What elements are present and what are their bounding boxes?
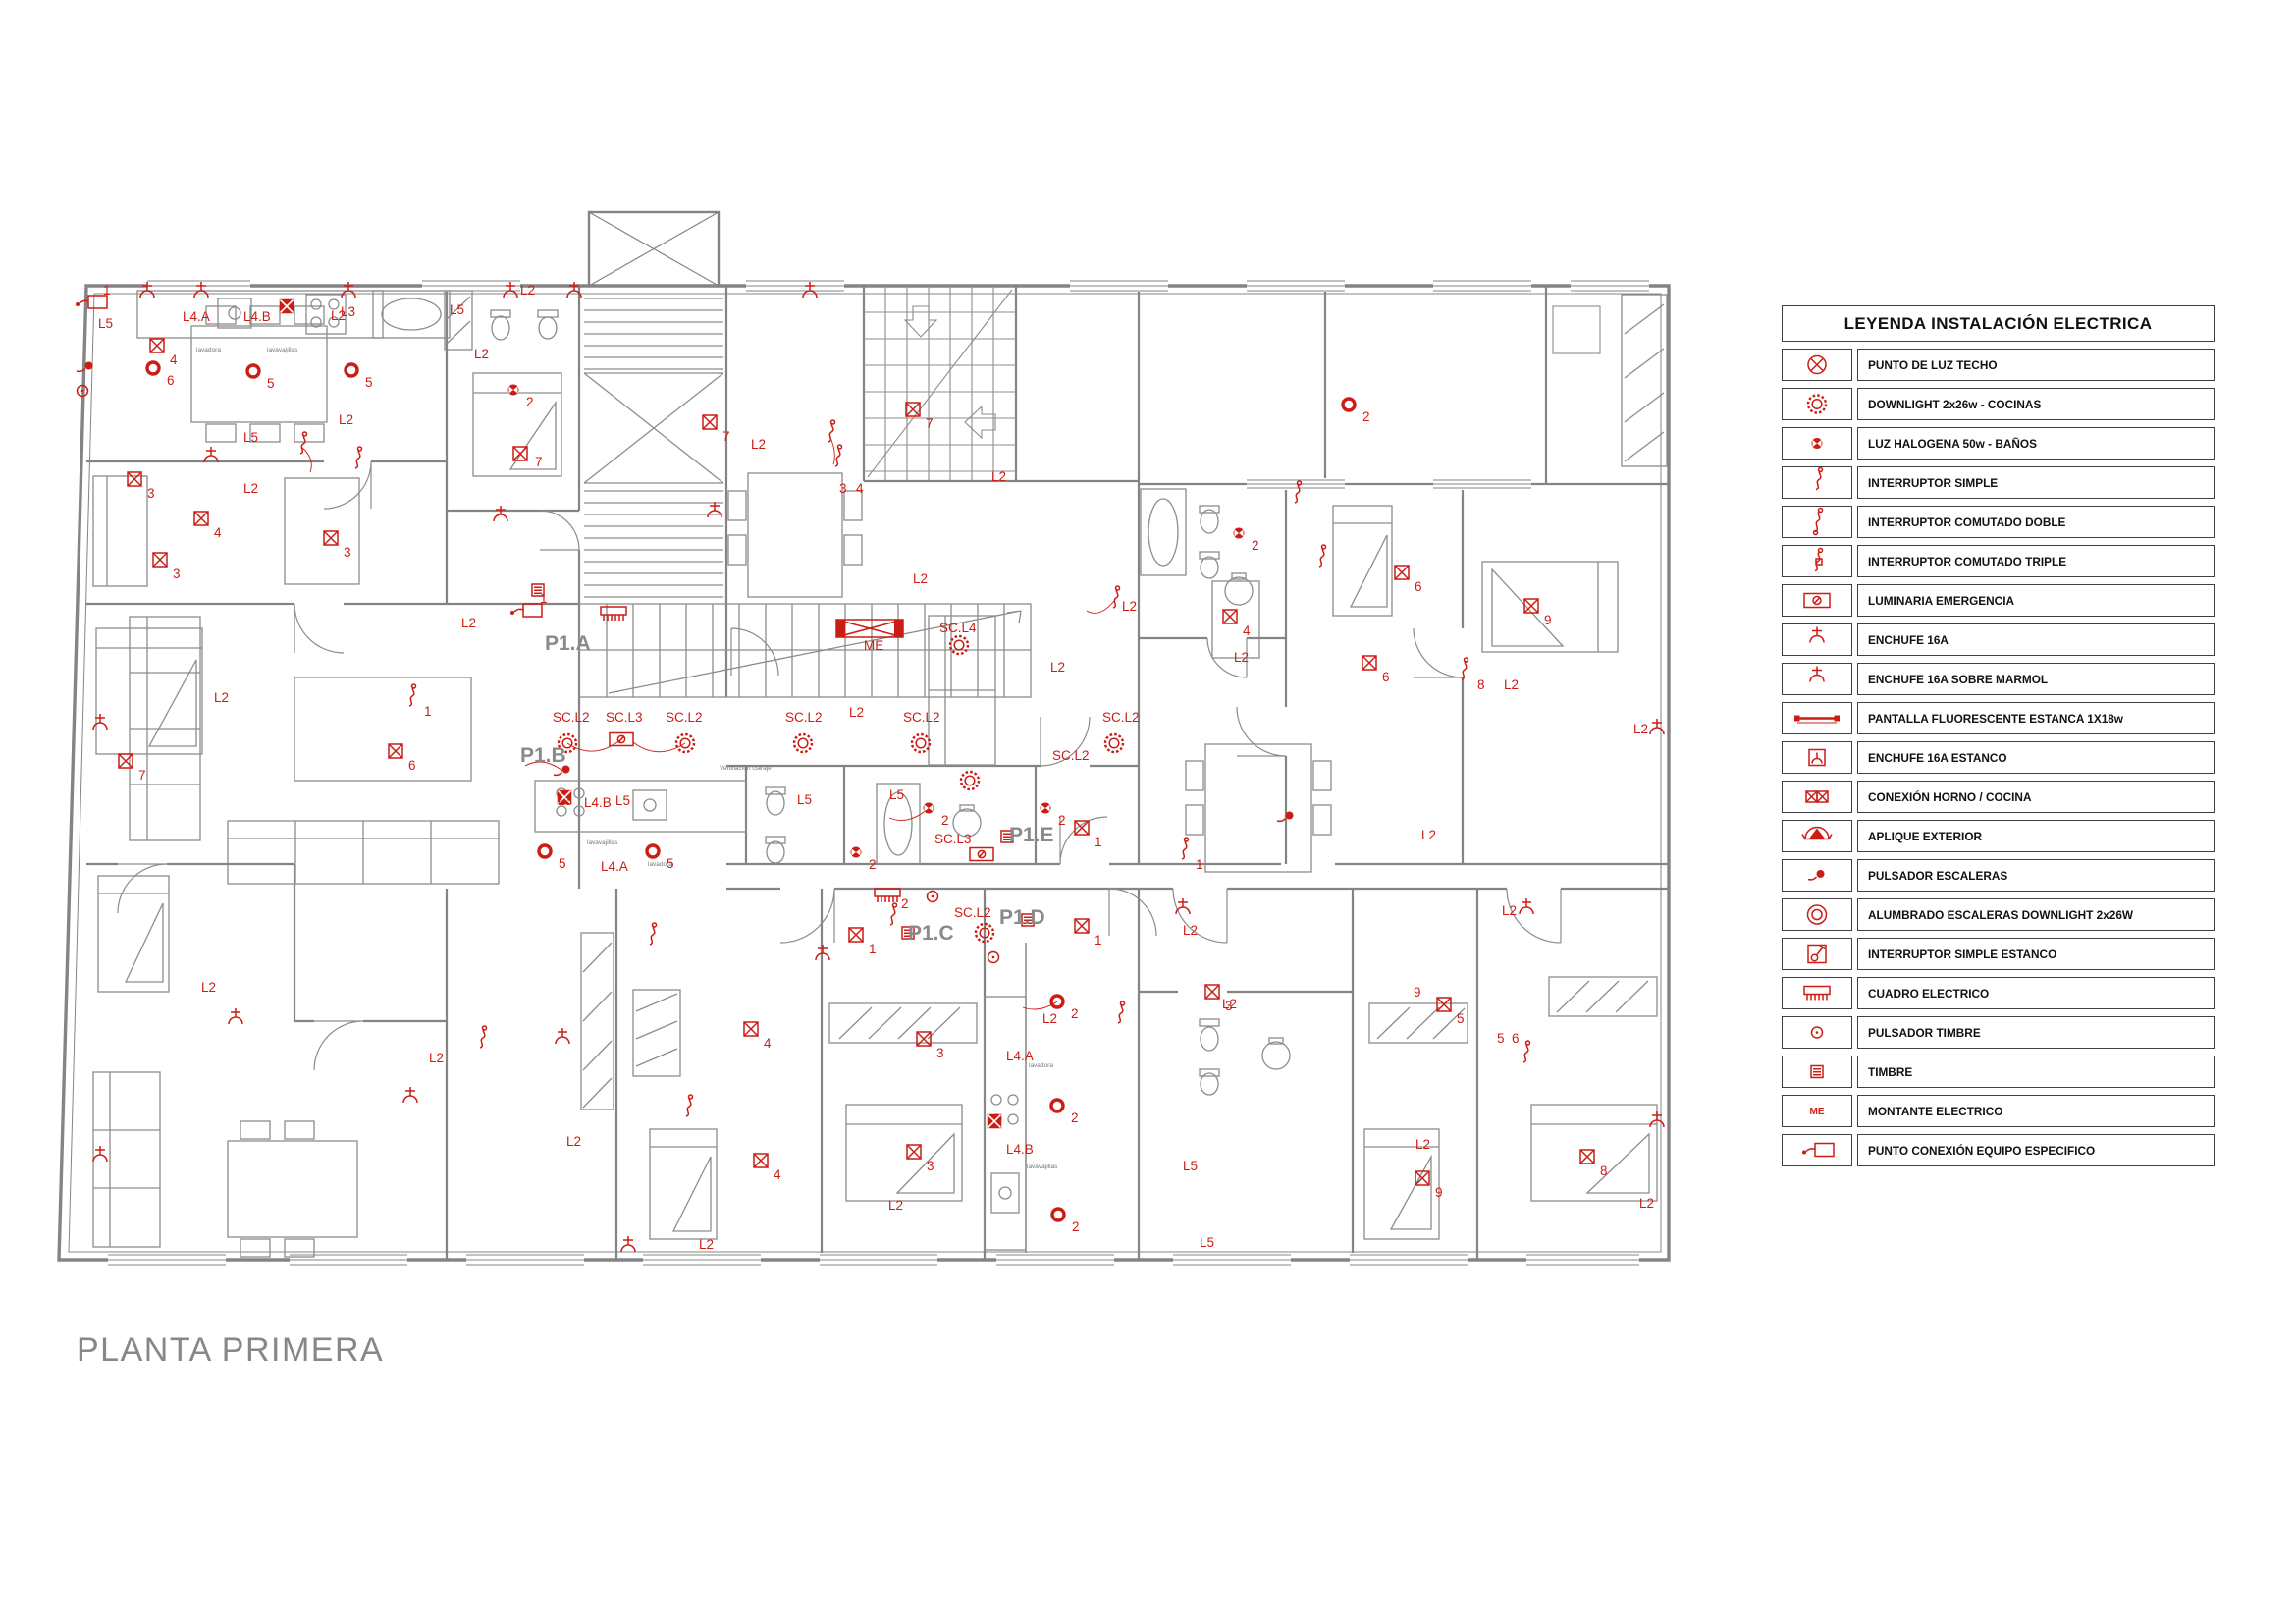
legend-row: PUNTO CONEXIÓN EQUIPO ESPECIFICO — [1782, 1134, 2215, 1166]
legend-row: INTERRUPTOR SIMPLE — [1782, 466, 2215, 499]
symbol-horno-icon — [281, 300, 294, 313]
circuit-label: 2 — [869, 857, 877, 872]
symbol-x-icon — [1223, 610, 1237, 623]
symbol-sw-icon — [1523, 1041, 1530, 1062]
symbol-br-icon — [1052, 1209, 1064, 1220]
symbol-x-icon — [389, 744, 402, 758]
coffee-table — [285, 478, 359, 584]
legend-label: APLIQUE EXTERIOR — [1857, 820, 2215, 852]
svg-text:ME: ME — [1810, 1107, 1825, 1117]
legend-row: CUADRO ELECTRICO — [1782, 977, 2215, 1009]
symbol-sw-icon — [828, 420, 835, 442]
legend-symbol-plt-icon — [1782, 349, 1852, 381]
sofa — [929, 616, 995, 765]
circuit-label: 3 — [344, 545, 351, 560]
symbol-x-icon — [153, 553, 167, 567]
legend-row: LUMINARIA EMERGENCIA — [1782, 584, 2215, 617]
wardrobe — [1549, 977, 1657, 1016]
legend-label: MONTANTE ELECTRICO — [1857, 1095, 2215, 1127]
plan-note: Ventilación Garaje — [720, 765, 772, 772]
symbol-x-icon — [907, 1145, 921, 1159]
apartment-label: P1.D — [999, 906, 1045, 929]
legend-label: ALUMBRADO ESCALERAS DOWNLIGHT 2x26W — [1857, 898, 2215, 931]
circuit-label: 3 — [927, 1159, 934, 1173]
symbol-sw-icon — [300, 432, 307, 454]
symbol-dl-icon — [1105, 734, 1123, 752]
symbol-cua-icon — [875, 889, 900, 902]
circuit-label: SC.L2 — [903, 710, 940, 725]
circuit-label: 3 — [839, 481, 847, 496]
circuit-label: L2 — [461, 616, 476, 630]
circuit-label: 2 — [1252, 538, 1259, 553]
circuit-label: 2 — [1072, 1219, 1080, 1234]
circuit-label: L5 — [450, 302, 464, 317]
circuit-label: 6 — [408, 758, 416, 773]
circuit-label: 1 — [869, 942, 877, 956]
circuit-label: 9 — [1435, 1185, 1443, 1200]
drawing-sheet: L2L2L2L2L2L2L2L2L2L2L2L2L2L2L2L2L2L2L2L2… — [0, 0, 2296, 1624]
symbol-dl-icon — [912, 734, 930, 752]
symbol-x-icon — [849, 928, 863, 942]
legend-label: PANTALLA FLUORESCENTE ESTANCA 1X18w — [1857, 702, 2215, 734]
circuit-label: 8 — [1600, 1164, 1608, 1178]
circuit-label: 2 — [1071, 1110, 1079, 1125]
wardrobe — [829, 1003, 977, 1043]
symbol-dl-icon — [794, 734, 812, 752]
legend-label: TIMBRE — [1857, 1056, 2215, 1088]
symbol-br-icon — [1343, 399, 1355, 410]
circuit-label: L2 — [214, 690, 229, 705]
symbol-x-icon — [1205, 985, 1219, 999]
symbol-x-icon — [1524, 599, 1538, 613]
apartment-label: P1.A — [545, 632, 591, 655]
circuit-label: L4.A — [1006, 1049, 1034, 1063]
symbol-hg-icon — [508, 385, 519, 396]
legend-symbol-ic3-icon — [1782, 545, 1852, 577]
circuit-label: SC.L2 — [785, 710, 823, 725]
symbol-br-icon — [647, 845, 659, 857]
circuit-label: 1 — [424, 704, 432, 719]
symbol-x-icon — [194, 512, 208, 525]
circuit-label: 2 — [1071, 1006, 1079, 1021]
symbol-sock-icon — [229, 1008, 242, 1024]
circuit-label: L3 — [341, 304, 355, 319]
circuit-label: 1 — [1095, 835, 1102, 849]
legend-symbol-e16e-icon — [1782, 741, 1852, 774]
circuit-label: L5 — [615, 793, 630, 808]
wardrobe — [1622, 295, 1667, 466]
legend-symbol-pfe-icon — [1782, 702, 1852, 734]
circuit-label: SC.L2 — [1102, 710, 1140, 725]
staircase — [579, 298, 1031, 697]
circuit-label: 4 — [764, 1036, 772, 1051]
apartment-label: P1.B — [520, 744, 566, 767]
circuit-label: 6 — [1415, 579, 1422, 594]
circuit-label: ME — [864, 638, 883, 653]
coffee-table — [294, 677, 471, 781]
circuit-label: 4 — [214, 525, 222, 540]
circuit-label: L5 — [243, 430, 258, 445]
circuit-label: 2 — [526, 395, 534, 409]
symbol-sock-icon — [1520, 898, 1533, 914]
plan-note: lavavajillas — [267, 347, 298, 353]
symbol-sock-icon — [204, 447, 218, 462]
toilet — [538, 310, 558, 339]
symbol-dl-icon — [950, 636, 968, 654]
toilet — [1200, 552, 1219, 578]
symbol-sw-icon — [650, 923, 657, 945]
wardrobe — [1369, 1003, 1468, 1043]
circuit-label: L5 — [1200, 1235, 1214, 1250]
toilet — [1200, 1019, 1219, 1051]
legend-row: ALUMBRADO ESCALERAS DOWNLIGHT 2x26W — [1782, 898, 2215, 931]
bed — [846, 1105, 962, 1201]
circuit-label: SC.L2 — [666, 710, 703, 725]
legend-symbol-apl-icon — [1782, 820, 1852, 852]
symbol-sw-icon — [835, 445, 842, 466]
symbol-pultim-icon — [988, 952, 999, 963]
wardrobe — [633, 990, 680, 1076]
legend-symbol-dlc-icon — [1782, 388, 1852, 420]
circuit-label: L2 — [1122, 599, 1137, 614]
circuit-label: L2 — [520, 283, 535, 298]
symbol-sw-icon — [355, 447, 362, 468]
legend-label: INTERRUPTOR COMUTADO TRIPLE — [1857, 545, 2215, 577]
symbol-x-icon — [1437, 998, 1451, 1011]
circuit-label: 2 — [941, 813, 949, 828]
toilet — [1200, 1069, 1219, 1095]
symbol-hg-icon — [1041, 803, 1051, 814]
circuit-label: L2 — [1234, 650, 1249, 665]
circuit-label: 7 — [138, 768, 146, 783]
legend-row: INTERRUPTOR SIMPLE ESTANCO — [1782, 938, 2215, 970]
sofa — [130, 617, 200, 840]
circuit-label: 5 — [1457, 1011, 1465, 1026]
symbol-sw-icon — [480, 1026, 487, 1048]
circuit-label: L2 — [991, 469, 1006, 484]
plan-note: lavadora — [196, 347, 221, 353]
legend-row: CONEXIÓN HORNO / COCINA — [1782, 781, 2215, 813]
legend-row: PULSADOR TIMBRE — [1782, 1016, 2215, 1049]
symbol-sw-icon — [686, 1095, 693, 1116]
symbol-x-icon — [1395, 566, 1409, 579]
legend-row: LUZ HALOGENA 50w - BAÑOS — [1782, 427, 2215, 460]
circuit-label: 4 — [774, 1167, 781, 1182]
circuit-label: L5 — [1183, 1159, 1198, 1173]
circuit-label: 5 — [267, 376, 275, 391]
legend-label: PUNTO DE LUZ TECHO — [1857, 349, 2215, 381]
symbol-sw-icon — [890, 903, 897, 925]
circuit-label: 2 — [1058, 813, 1066, 828]
circuit-label: 1 — [1196, 857, 1203, 872]
symbol-x-icon — [324, 531, 338, 545]
circuit-label: 4 — [1243, 623, 1251, 638]
symbol-pce-icon — [510, 604, 542, 617]
circuit-label: L4.B — [584, 795, 612, 810]
circuit-label: SC.L3 — [934, 832, 972, 846]
circuit-label: 5 — [365, 375, 373, 390]
circuit-label: 5 — [559, 856, 566, 871]
circuit-label: L2 — [1504, 677, 1519, 692]
symbol-x-icon — [150, 339, 164, 352]
circuit-label: L4.B — [1006, 1142, 1034, 1157]
circuit-label: 3 — [147, 486, 155, 501]
legend-label: CONEXIÓN HORNO / COCINA — [1857, 781, 2215, 813]
symbol-emg-icon — [610, 733, 633, 746]
symbol-sw-icon — [1319, 545, 1326, 567]
circuit-label: L3 — [558, 793, 572, 808]
symbol-x-icon — [128, 472, 141, 486]
circuit-label: 6 — [1512, 1031, 1520, 1046]
symbol-sock-icon — [494, 506, 507, 521]
circuit-label: SC.L2 — [954, 905, 991, 920]
circuit-label: L2 — [566, 1134, 581, 1149]
legend-symbol-lem-icon — [1782, 584, 1852, 617]
circuit-label: SC.L3 — [606, 710, 643, 725]
bed — [96, 628, 202, 754]
circuit-label: SC.L2 — [553, 710, 590, 725]
circuit-label: L5 — [889, 787, 904, 802]
circuit-label: 6 — [167, 373, 175, 388]
legend-row: ENCHUFE 16A SOBRE MARMOL — [1782, 663, 2215, 695]
toilet — [491, 310, 510, 340]
legend-symbol-hal-icon — [1782, 427, 1852, 460]
symbol-hg-icon — [924, 803, 934, 814]
legend-row: PULSADOR ESCALERAS — [1782, 859, 2215, 892]
circuit-label: L2 — [1183, 923, 1198, 938]
symbol-sock-icon — [556, 1028, 569, 1044]
circuit-label: L2 — [474, 347, 489, 361]
legend-row: PUNTO DE LUZ TECHO — [1782, 349, 2215, 381]
circuit-label: L4.B — [243, 309, 271, 324]
symbol-cua-icon — [601, 607, 626, 621]
circuit-label: SC.L2 — [1052, 748, 1090, 763]
circuit-label: L5 — [797, 792, 812, 807]
symbol-sock-icon — [93, 714, 107, 730]
circuit-label: L5 — [98, 316, 113, 331]
legend-row: ENCHUFE 16A ESTANCO — [1782, 741, 2215, 774]
legend-label: PULSADOR TIMBRE — [1857, 1016, 2215, 1049]
legend-symbol-cel-icon — [1782, 977, 1852, 1009]
circuit-label: 1 — [103, 283, 111, 298]
page-title: PLANTA PRIMERA — [77, 1331, 384, 1370]
symbol-sw-icon — [1462, 658, 1468, 679]
toilet — [1200, 506, 1219, 533]
circuit-label: L2 — [1050, 660, 1065, 675]
circuit-label: 7 — [926, 416, 934, 431]
legend-row: INTERRUPTOR COMUTADO TRIPLE — [1782, 545, 2215, 577]
plan-note: lavavajillas — [1027, 1164, 1058, 1170]
symbol-sock-icon — [1650, 719, 1664, 734]
wardrobe — [581, 933, 614, 1110]
basin — [1225, 573, 1253, 605]
circuit-label: 2 — [1362, 409, 1370, 424]
circuit-label: L2 — [1502, 903, 1517, 918]
bathtub — [373, 291, 450, 338]
symbol-x-icon — [1580, 1150, 1594, 1164]
legend-label: INTERRUPTOR SIMPLE ESTANCO — [1857, 938, 2215, 970]
symbol-br-icon — [346, 364, 357, 376]
symbol-x-icon — [1362, 656, 1376, 670]
legend-label: CUADRO ELECTRICO — [1857, 977, 2215, 1009]
legend-label: ENCHUFE 16A — [1857, 623, 2215, 656]
circuit-label: 1 — [540, 591, 548, 606]
circuit-label: L2 — [429, 1051, 444, 1065]
symbol-x-icon — [513, 447, 527, 460]
circuit-label: L2 — [1415, 1137, 1430, 1152]
legend-label: ENCHUFE 16A SOBRE MARMOL — [1857, 663, 2215, 695]
plan-labels-layer: L2L2L2L2L2L2L2L2L2L2L2L2L2L2L2L2L2L2L2L2… — [98, 283, 1654, 1252]
basin — [1262, 1038, 1290, 1069]
legend-row: ENCHUFE 16A — [1782, 623, 2215, 656]
symbol-hg-icon — [851, 847, 862, 858]
circuit-label: L2 — [339, 412, 353, 427]
symbol-br-icon — [247, 365, 259, 377]
apartment-label: P1.C — [908, 922, 954, 945]
legend-row: PANTALLA FLUORESCENTE ESTANCA 1X18w — [1782, 702, 2215, 734]
symbol-br-icon — [147, 362, 159, 374]
circuit-label: 3 — [173, 567, 181, 581]
wiring — [301, 435, 1114, 1009]
legend-symbol-tbr-icon — [1782, 1056, 1852, 1088]
legend-label: DOWNLIGHT 2x26w - COCINAS — [1857, 388, 2215, 420]
bed — [1333, 506, 1392, 616]
symbol-x-icon — [744, 1022, 758, 1036]
sofa — [93, 476, 147, 586]
legend-label: INTERRUPTOR SIMPLE — [1857, 466, 2215, 499]
wardrobe — [445, 291, 472, 350]
symbol-dl-icon — [961, 772, 979, 789]
legend-symbol-is1-icon — [1782, 466, 1852, 499]
bed — [98, 876, 169, 992]
legend-symbol-pes-icon — [1782, 859, 1852, 892]
symbol-sw-icon — [1118, 1001, 1125, 1023]
circuit-label: 2 — [901, 896, 909, 911]
circuit-label: 1 — [1095, 933, 1102, 947]
legend-symbol-ic2-icon — [1782, 506, 1852, 538]
circuit-label: L2 — [1042, 1011, 1057, 1026]
legend-label: LUMINARIA EMERGENCIA — [1857, 584, 2215, 617]
legend-symbol-aed-icon — [1782, 898, 1852, 931]
circuit-label: L2 — [849, 705, 864, 720]
legend-symbol-e16-icon — [1782, 623, 1852, 656]
circuit-label: 4 — [170, 352, 178, 367]
circuit-label: L2 — [1421, 828, 1436, 842]
legend-title: LEYENDA INSTALACIÓN ELECTRICA — [1782, 305, 2215, 342]
symbol-sock-icon — [621, 1236, 635, 1252]
circuit-label: 4 — [856, 481, 864, 496]
symbol-horno-icon — [988, 1115, 1001, 1128]
circuit-label: 5 — [1497, 1031, 1505, 1046]
plan-note: lavadora — [1029, 1062, 1053, 1069]
legend-label: PULSADOR ESCALERAS — [1857, 859, 2215, 892]
legend-symbol-mel-icon: ME — [1782, 1095, 1852, 1127]
symbol-x-icon — [906, 403, 920, 416]
sofa — [228, 821, 499, 884]
circuit-label: L2 — [243, 481, 258, 496]
circuit-label: L2 — [888, 1198, 903, 1213]
legend-symbol-e16m-icon — [1782, 663, 1852, 695]
legend-symbol-ise-icon — [1782, 938, 1852, 970]
legend-symbol-pce-icon — [1782, 1134, 1852, 1166]
legend-row: DOWNLIGHT 2x26w - COCINAS — [1782, 388, 2215, 420]
legend-row: APLIQUE EXTERIOR — [1782, 820, 2215, 852]
plan-note: lavadora — [648, 861, 672, 868]
circuit-label: 9 — [1414, 985, 1421, 1000]
symbol-x-icon — [703, 415, 717, 429]
circuit-label: L2 — [751, 437, 766, 452]
symbol-sock-icon — [93, 1146, 107, 1162]
symbol-emg-icon — [970, 848, 993, 861]
circuit-label: 9 — [1544, 613, 1552, 627]
dining-table — [1186, 744, 1331, 872]
symbol-x-icon — [119, 754, 133, 768]
legend-label: ENCHUFE 16A ESTANCO — [1857, 741, 2215, 774]
symbol-x-icon — [1075, 919, 1089, 933]
circuit-label: L4.A — [183, 309, 210, 324]
circuit-label: 3 — [1225, 999, 1233, 1013]
circuit-label: L2 — [1633, 722, 1648, 736]
symbol-pant-icon — [836, 620, 903, 637]
legend-row: MEMONTANTE ELECTRICO — [1782, 1095, 2215, 1127]
circuit-label: 7 — [535, 455, 543, 469]
legend-label: INTERRUPTOR COMUTADO DOBLE — [1857, 506, 2215, 538]
circuit-label: SC.L4 — [939, 621, 977, 635]
circuit-label: 7 — [722, 429, 730, 444]
circuit-label: L2 — [913, 571, 928, 586]
toilet — [766, 787, 785, 815]
plan-note: lavavajillas — [587, 839, 618, 846]
circuit-label: L2 — [699, 1237, 714, 1252]
garage-ramp — [864, 286, 1600, 481]
symbol-sw-icon — [1113, 586, 1120, 608]
symbol-sw-icon — [409, 684, 416, 706]
symbol-x-icon — [754, 1154, 768, 1167]
legend-symbol-chc-icon — [1782, 781, 1852, 813]
symbol-pultim-icon — [928, 892, 938, 902]
legend-label: PUNTO CONEXIÓN EQUIPO ESPECIFICO — [1857, 1134, 2215, 1166]
legend-label: LUZ HALOGENA 50w - BAÑOS — [1857, 427, 2215, 460]
furniture-layer — [93, 291, 1667, 1257]
dining-table — [228, 1121, 357, 1257]
legend-row: INTERRUPTOR COMUTADO DOBLE — [1782, 506, 2215, 538]
circuit-label: 8 — [1477, 677, 1485, 692]
symbol-hg-icon — [1234, 528, 1245, 539]
legend-panel: LEYENDA INSTALACIÓN ELECTRICA PUNTO DE L… — [1782, 305, 2215, 1166]
bed — [650, 1129, 717, 1239]
symbol-sock-icon — [403, 1087, 417, 1103]
bed — [1482, 562, 1618, 652]
symbol-br-icon — [539, 845, 551, 857]
sofa — [93, 1072, 160, 1247]
bathtub — [1141, 489, 1186, 575]
toilet — [766, 837, 785, 863]
legend-rows: PUNTO DE LUZ TECHODOWNLIGHT 2x26w - COCI… — [1782, 349, 2215, 1166]
symbol-sw-icon — [1182, 838, 1189, 859]
apartment-label: P1.E — [1009, 824, 1054, 846]
legend-symbol-ptm-icon — [1782, 1016, 1852, 1049]
circuit-label: L2 — [201, 980, 216, 995]
circuit-label: 6 — [1382, 670, 1390, 684]
symbol-br-icon — [1051, 1100, 1063, 1111]
circuit-label: L2 — [1639, 1196, 1654, 1211]
legend-row: TIMBRE — [1782, 1056, 2215, 1088]
circuit-label: L4.A — [601, 859, 628, 874]
circuit-label: 3 — [936, 1046, 944, 1060]
